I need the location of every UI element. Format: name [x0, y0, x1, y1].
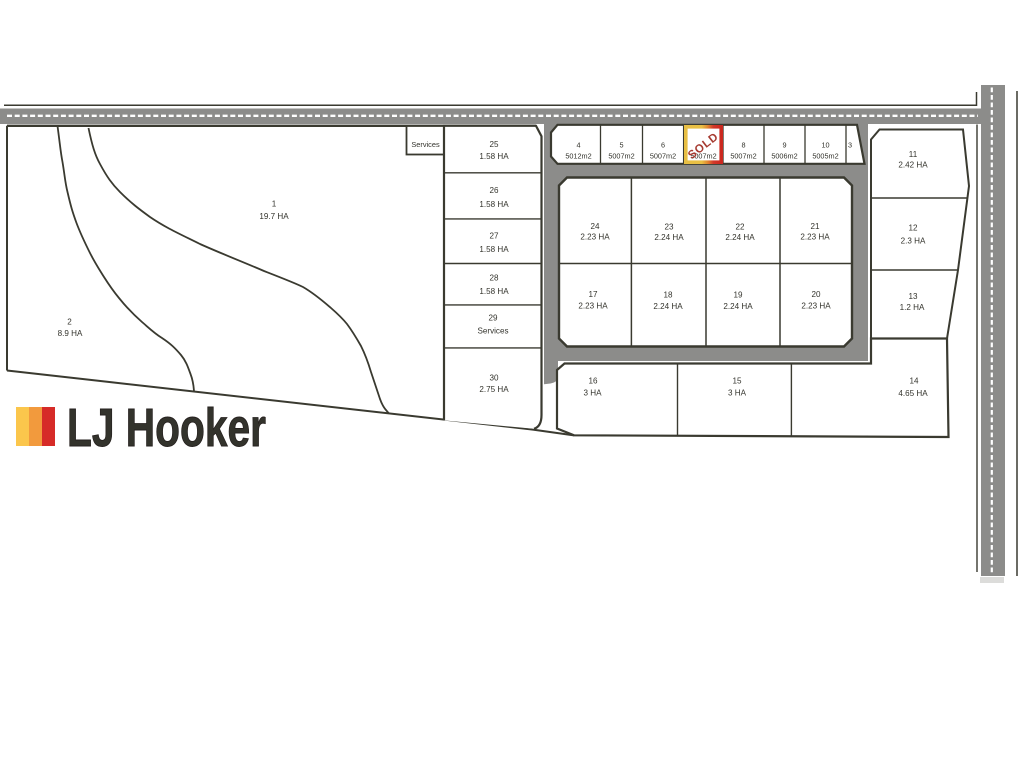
svg-text:8: 8 — [741, 141, 745, 150]
svg-text:2.3 HA: 2.3 HA — [901, 237, 926, 246]
svg-text:5007m2: 5007m2 — [730, 152, 756, 161]
svg-text:5007m2: 5007m2 — [650, 152, 676, 161]
svg-text:22: 22 — [735, 223, 745, 232]
svg-text:Services: Services — [477, 327, 508, 336]
svg-text:18: 18 — [663, 291, 673, 300]
svg-text:27: 27 — [489, 232, 499, 241]
svg-text:2.23 HA: 2.23 HA — [800, 233, 830, 242]
svg-text:5006m2: 5006m2 — [771, 152, 797, 161]
svg-text:19.7 HA: 19.7 HA — [259, 212, 289, 221]
svg-text:4: 4 — [576, 141, 580, 150]
svg-text:11: 11 — [909, 150, 918, 159]
svg-text:15: 15 — [732, 377, 742, 386]
svg-text:2.24 HA: 2.24 HA — [725, 233, 755, 242]
svg-text:LJ Hooker: LJ Hooker — [67, 398, 266, 458]
svg-text:Services: Services — [411, 140, 440, 149]
svg-text:2: 2 — [67, 318, 72, 327]
svg-text:21: 21 — [810, 222, 820, 231]
svg-text:2.24 HA: 2.24 HA — [654, 233, 684, 242]
svg-text:19: 19 — [733, 291, 743, 300]
svg-text:5007m2: 5007m2 — [608, 152, 634, 161]
svg-text:8.9 HA: 8.9 HA — [58, 329, 83, 338]
svg-text:3: 3 — [848, 141, 852, 150]
svg-text:23: 23 — [664, 223, 674, 232]
svg-text:1.58 HA: 1.58 HA — [479, 287, 509, 296]
svg-text:2.24 HA: 2.24 HA — [723, 302, 753, 311]
svg-text:1.58 HA: 1.58 HA — [479, 200, 509, 209]
svg-text:3 HA: 3 HA — [584, 389, 603, 398]
svg-text:1.58 HA: 1.58 HA — [479, 245, 509, 254]
svg-text:2.75 HA: 2.75 HA — [479, 385, 509, 394]
svg-text:2.24 HA: 2.24 HA — [653, 302, 683, 311]
svg-text:14: 14 — [909, 377, 919, 386]
svg-text:12: 12 — [908, 224, 918, 233]
svg-text:29: 29 — [488, 314, 498, 323]
svg-text:20: 20 — [811, 290, 821, 299]
svg-text:1.2 HA: 1.2 HA — [900, 303, 925, 312]
svg-text:6: 6 — [661, 141, 665, 150]
svg-text:2.23 HA: 2.23 HA — [578, 302, 608, 311]
svg-text:9: 9 — [782, 141, 786, 150]
svg-text:28: 28 — [489, 274, 499, 283]
svg-text:1: 1 — [272, 200, 277, 209]
svg-text:30: 30 — [489, 374, 499, 383]
svg-text:2.23 HA: 2.23 HA — [580, 233, 610, 242]
svg-text:1.58 HA: 1.58 HA — [479, 152, 509, 161]
svg-text:26: 26 — [489, 186, 499, 195]
svg-text:24: 24 — [590, 222, 600, 231]
svg-text:25: 25 — [489, 140, 499, 149]
svg-text:5: 5 — [619, 141, 623, 150]
svg-text:10: 10 — [821, 141, 829, 150]
svg-text:3 HA: 3 HA — [728, 389, 747, 398]
svg-text:2.42 HA: 2.42 HA — [898, 161, 928, 170]
svg-text:17: 17 — [588, 290, 598, 299]
svg-text:4.65 HA: 4.65 HA — [898, 389, 928, 398]
svg-text:5012m2: 5012m2 — [565, 152, 591, 161]
svg-text:16: 16 — [588, 377, 598, 386]
svg-text:13: 13 — [908, 292, 918, 301]
svg-text:2.23 HA: 2.23 HA — [801, 302, 831, 311]
svg-text:5005m2: 5005m2 — [812, 152, 838, 161]
